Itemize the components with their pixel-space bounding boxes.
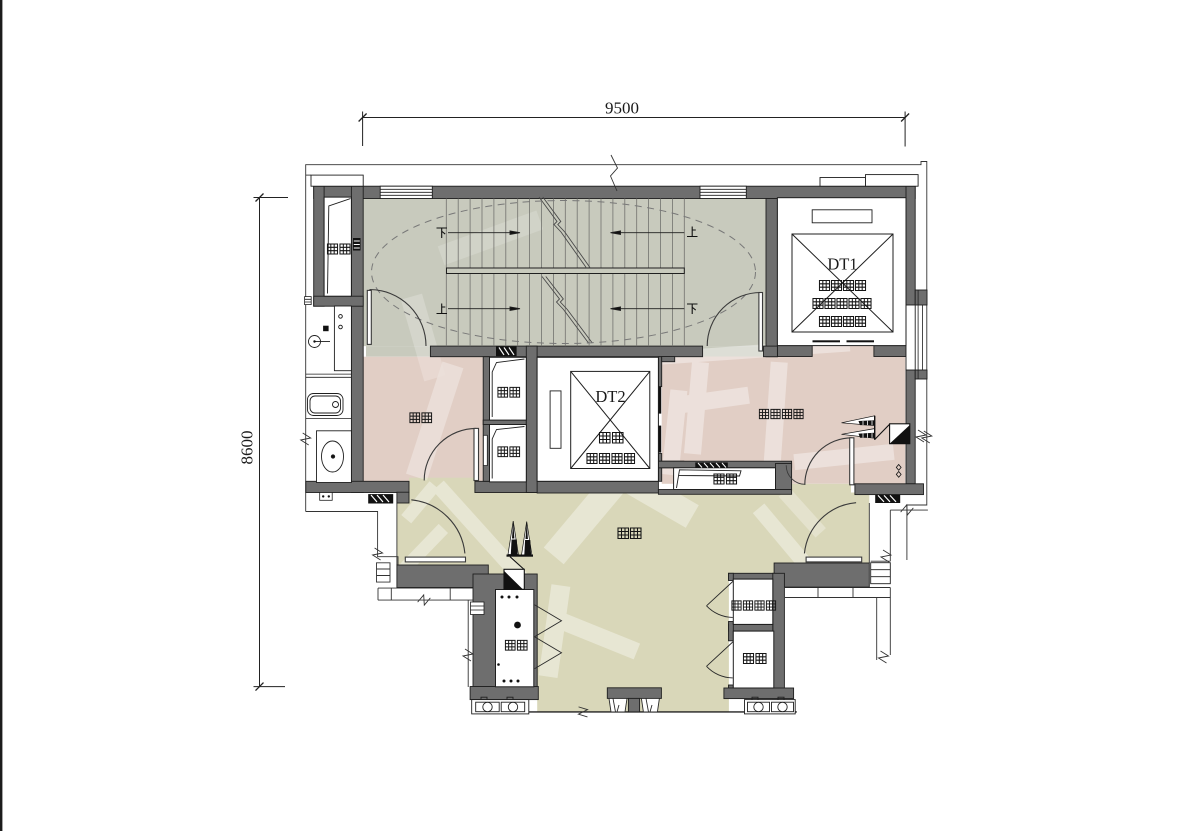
svg-text:DT1: DT1 (827, 255, 857, 274)
svg-text:DT2: DT2 (595, 387, 625, 406)
svg-text:9500: 9500 (605, 99, 639, 118)
svg-text:8600: 8600 (238, 431, 257, 465)
